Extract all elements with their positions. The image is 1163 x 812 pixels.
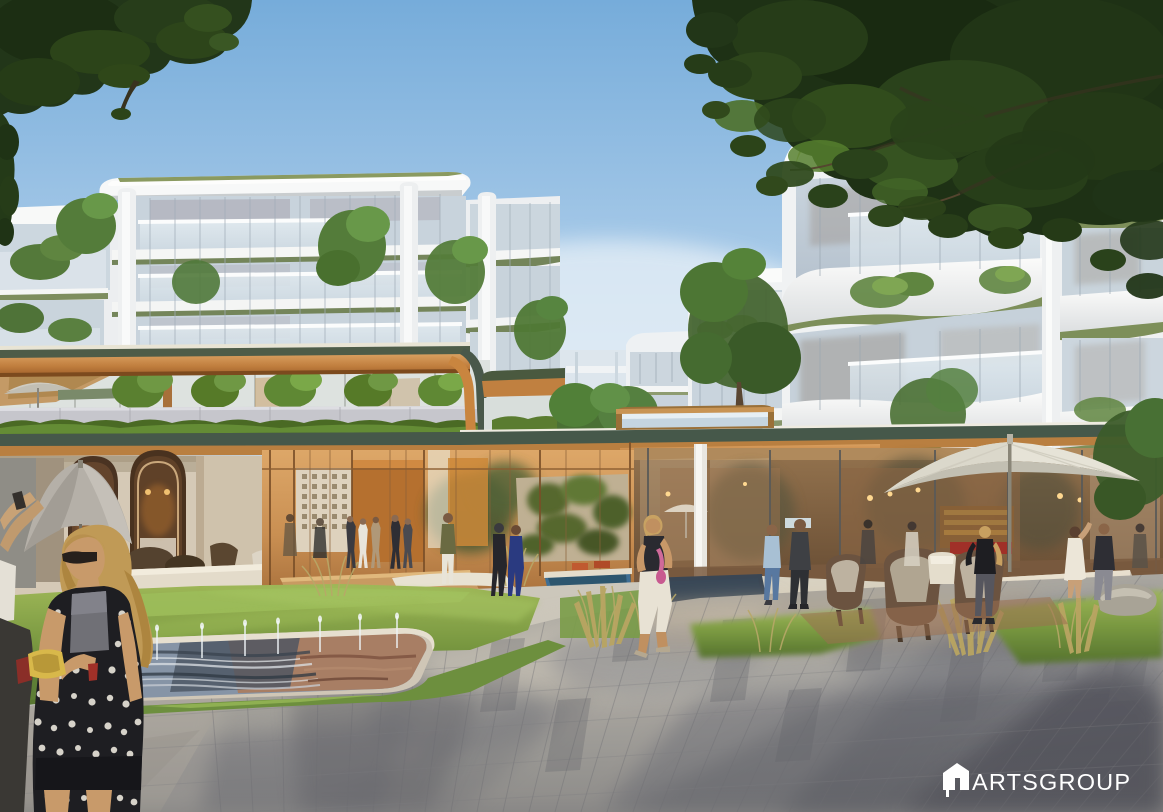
svg-text:ARTSGROUP: ARTSGROUP (972, 769, 1131, 795)
